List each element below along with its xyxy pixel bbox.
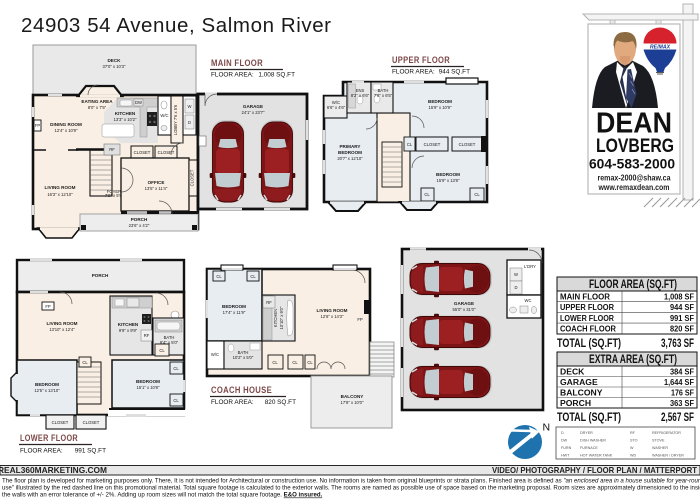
svg-text:BEDROOM: BEDROOM — [222, 304, 246, 309]
svg-text:L'DRY: L'DRY — [524, 264, 536, 269]
svg-text:FP: FP — [45, 304, 51, 309]
svg-text:WASHER: WASHER — [652, 446, 668, 450]
svg-text:W/C: W/C — [160, 113, 168, 118]
svg-text:13'3" x 10'2": 13'3" x 10'2" — [114, 117, 137, 122]
svg-text:176 SF: 176 SF — [671, 387, 694, 397]
svg-text:GARAGE: GARAGE — [560, 377, 598, 387]
svg-text:15'9" x 13'8": 15'9" x 13'8" — [437, 178, 460, 183]
svg-text:RF: RF — [266, 300, 272, 305]
svg-text:BEDROOM: BEDROOM — [338, 150, 362, 155]
svg-text:FLOOR AREA:: FLOOR AREA: — [392, 69, 435, 76]
svg-text:3,763 SF: 3,763 SF — [661, 338, 694, 350]
svg-text:1,008 SQ.FT: 1,008 SQ.FT — [258, 72, 295, 79]
svg-text:BEDROOM: BEDROOM — [428, 99, 452, 104]
svg-text:DECK: DECK — [560, 366, 585, 376]
svg-text:6'6" x 4'6": 6'6" x 4'6" — [327, 105, 346, 110]
svg-text:10'10" x 9'0": 10'10" x 9'0" — [279, 306, 284, 329]
svg-text:KITCHEN: KITCHEN — [115, 111, 136, 116]
svg-text:CL: CL — [272, 360, 278, 365]
svg-text:FURNACE: FURNACE — [580, 446, 598, 450]
svg-text:www.remaxdean.com: www.remaxdean.com — [598, 182, 670, 192]
svg-text:REFRIGERATOR: REFRIGERATOR — [652, 431, 681, 435]
svg-text:16'3" x 12'10": 16'3" x 12'10" — [47, 192, 73, 197]
svg-text:TOTAL (SQ.FT): TOTAL (SQ.FT) — [557, 338, 621, 350]
svg-text:CL: CL — [474, 192, 480, 197]
svg-text:FP: FP — [35, 123, 41, 128]
svg-text:RF: RF — [109, 147, 115, 152]
svg-text:7'8" x 6'5": 7'8" x 6'5" — [374, 93, 393, 98]
svg-text:CLOSET: CLOSET — [459, 142, 476, 147]
svg-text:OFFICE: OFFICE — [148, 180, 165, 185]
svg-text:COACH FLOOR: COACH FLOOR — [560, 324, 617, 334]
svg-text:55'0" x 31'0": 55'0" x 31'0" — [453, 307, 476, 312]
svg-text:FLOOR AREA:: FLOOR AREA: — [20, 448, 63, 455]
svg-text:DECK: DECK — [107, 58, 121, 63]
svg-text:GARAGE: GARAGE — [243, 104, 263, 109]
svg-text:D: D — [188, 120, 191, 125]
svg-text:CL: CL — [159, 348, 165, 353]
svg-text:EATING AREA: EATING AREA — [81, 99, 113, 104]
svg-text:STOVE: STOVE — [652, 439, 665, 443]
svg-text:DEAN: DEAN — [596, 108, 672, 140]
svg-text:CL: CL — [173, 398, 179, 403]
svg-text:PRIMARY: PRIMARY — [339, 144, 360, 149]
svg-text:CL: CL — [307, 360, 313, 365]
svg-text:W: W — [188, 104, 192, 109]
svg-text:12'6" x 14'3": 12'6" x 14'3" — [321, 314, 344, 319]
svg-text:604-583-2000: 604-583-2000 — [589, 156, 675, 172]
svg-text:820 SQ.FT: 820 SQ.FT — [265, 399, 296, 406]
svg-text:FLOOR AREA:: FLOOR AREA: — [211, 399, 254, 406]
svg-text:MAIN FLOOR: MAIN FLOOR — [211, 58, 263, 69]
svg-text:8'2" x 6'6": 8'2" x 6'6" — [351, 93, 370, 98]
svg-text:BEDROOM: BEDROOM — [35, 382, 59, 387]
svg-text:FLOOR AREA:: FLOOR AREA: — [211, 72, 254, 79]
svg-text:384 SF: 384 SF — [670, 366, 694, 376]
svg-text:HWT: HWT — [561, 454, 570, 458]
svg-text:HOT WATER TANK: HOT WATER TANK — [580, 454, 613, 458]
svg-text:24'1" x 23'7": 24'1" x 23'7" — [242, 110, 265, 115]
svg-text:the walls with an error tolera: the walls with an error tolerance of +/-… — [2, 492, 323, 499]
svg-text:UPPER FLOOR: UPPER FLOOR — [560, 302, 615, 312]
svg-text:363 SF: 363 SF — [670, 398, 694, 408]
svg-text:LIVING ROOM: LIVING ROOM — [317, 308, 348, 313]
svg-text:DW: DW — [561, 439, 568, 443]
svg-text:8'0" x 7'5": 8'0" x 7'5" — [88, 105, 107, 110]
svg-text:D: D — [561, 431, 564, 435]
svg-text:remax-2000@shaw.ca: remax-2000@shaw.ca — [598, 173, 671, 183]
svg-text:BALCONY: BALCONY — [341, 394, 364, 399]
svg-text:WASHER / DRYER: WASHER / DRYER — [652, 454, 684, 458]
svg-text:DW: DW — [135, 100, 142, 105]
svg-text:KITCHEN: KITCHEN — [273, 309, 278, 327]
svg-text:23'6" x 4'2": 23'6" x 4'2" — [129, 223, 150, 228]
svg-text:FP: FP — [357, 317, 363, 322]
svg-text:CLOSET: CLOSET — [424, 142, 441, 147]
svg-text:12'4" x 10'9": 12'4" x 10'9" — [55, 128, 78, 133]
svg-text:UPPER FLOOR: UPPER FLOOR — [392, 55, 450, 66]
svg-text:BALCONY: BALCONY — [560, 387, 603, 397]
svg-text:MAIN FLOOR: MAIN FLOOR — [560, 292, 611, 302]
svg-text:CLOSET: CLOSET — [83, 420, 100, 425]
svg-text:944 SQ.FT: 944 SQ.FT — [439, 69, 470, 76]
svg-text:12'5" x 13'10": 12'5" x 13'10" — [34, 388, 60, 393]
svg-text:944 SF: 944 SF — [670, 302, 694, 312]
svg-text:LIVING ROOM: LIVING ROOM — [45, 185, 76, 190]
svg-text:TOTAL (SQ.FT): TOTAL (SQ.FT) — [557, 412, 621, 424]
svg-text:WC: WC — [525, 298, 532, 303]
svg-text:DRYER: DRYER — [580, 431, 593, 435]
svg-text:N: N — [543, 422, 551, 434]
svg-text:17'8" x 10'0": 17'8" x 10'0" — [341, 400, 364, 405]
svg-text:CL: CL — [407, 142, 413, 147]
svg-text:CL: CL — [173, 366, 179, 371]
svg-text:LIVING ROOM: LIVING ROOM — [47, 321, 78, 326]
svg-text:RF: RF — [144, 333, 150, 338]
svg-text:The floor plan is developed fo: The floor plan is developed for marketin… — [2, 478, 700, 485]
svg-text:991 SF: 991 SF — [670, 313, 694, 323]
svg-text:CL: CL — [82, 360, 88, 365]
svg-text:FLOOR AREA (SQ.FT): FLOOR AREA (SQ.FT) — [589, 279, 677, 291]
svg-text:13'5" x 11'4": 13'5" x 11'4" — [145, 186, 168, 191]
svg-text:13'10" x 12'4": 13'10" x 12'4" — [49, 327, 75, 332]
svg-text:9'9" x 9'9": 9'9" x 9'9" — [119, 328, 138, 333]
svg-text:EXTRA AREA (SQ.FT): EXTRA AREA (SQ.FT) — [589, 354, 677, 366]
svg-text:24903 54 Avenue, Salmon River: 24903 54 Avenue, Salmon River — [21, 14, 331, 37]
svg-text:LOVBERG: LOVBERG — [596, 136, 674, 157]
svg-text:FURN: FURN — [561, 446, 572, 450]
svg-text:LOBBY 7'6 x 5'6: LOBBY 7'6 x 5'6 — [173, 104, 178, 135]
svg-text:PORCH: PORCH — [131, 217, 148, 222]
svg-text:W: W — [514, 272, 518, 277]
svg-text:CLOSET: CLOSET — [158, 150, 175, 155]
svg-text:COACH HOUSE: COACH HOUSE — [211, 385, 272, 396]
svg-text:820 SF: 820 SF — [670, 324, 694, 334]
svg-text:RF: RF — [630, 431, 636, 435]
svg-text:17'4" x 11'9": 17'4" x 11'9" — [223, 310, 246, 315]
svg-text:KITCHEN: KITCHEN — [118, 322, 139, 327]
svg-text:W: W — [630, 446, 634, 450]
svg-text:15'9" x 10'9": 15'9" x 10'9" — [429, 105, 452, 110]
svg-text:CLOSET: CLOSET — [52, 420, 69, 425]
svg-text:REAL360MARKETING.COM: REAL360MARKETING.COM — [0, 465, 107, 475]
svg-text:991 SQ.FT: 991 SQ.FT — [75, 448, 106, 455]
svg-text:DISH WASHER: DISH WASHER — [580, 439, 606, 443]
svg-text:CL: CL — [424, 192, 430, 197]
svg-text:CLOSET: CLOSET — [190, 169, 195, 186]
svg-text:CL: CL — [292, 360, 298, 365]
svg-text:15'1" x 10'8": 15'1" x 10'8" — [137, 385, 160, 390]
svg-text:use" illustrated by the red da: use" illustrated by the red dashed line … — [2, 485, 700, 492]
svg-text:BEDROOM: BEDROOM — [136, 379, 160, 384]
svg-text:LOWER FLOOR: LOWER FLOOR — [560, 313, 615, 323]
svg-text:STO: STO — [630, 439, 638, 443]
svg-text:LOWER FLOOR: LOWER FLOOR — [20, 433, 78, 444]
svg-text:VIDEO/ PHOTOGRAPHY / FLOOR PLA: VIDEO/ PHOTOGRAPHY / FLOOR PLAN / MATTER… — [492, 465, 697, 475]
svg-text:DINING ROOM: DINING ROOM — [50, 122, 82, 127]
svg-text:CL: CL — [250, 274, 256, 279]
svg-text:GARAGE: GARAGE — [454, 301, 474, 306]
svg-text:W/C: W/C — [211, 352, 219, 357]
svg-text:10'2" x 5'0": 10'2" x 5'0" — [233, 355, 254, 360]
svg-text:CL: CL — [216, 274, 222, 279]
svg-text:20'7" x 12'10": 20'7" x 12'10" — [337, 156, 363, 161]
svg-text:PORCH: PORCH — [92, 273, 109, 278]
svg-text:WD: WD — [630, 454, 636, 458]
svg-text:37'0" x 10'3": 37'0" x 10'3" — [103, 64, 126, 69]
svg-text:PORCH: PORCH — [560, 398, 591, 408]
svg-text:2,567 SF: 2,567 SF — [661, 412, 694, 424]
svg-text:CLOSET: CLOSET — [134, 150, 151, 155]
svg-text:1,644 SF: 1,644 SF — [664, 377, 694, 387]
svg-text:BEDROOM: BEDROOM — [436, 172, 460, 177]
svg-text:D: D — [514, 285, 517, 290]
svg-text:1,008 SF: 1,008 SF — [664, 292, 694, 302]
